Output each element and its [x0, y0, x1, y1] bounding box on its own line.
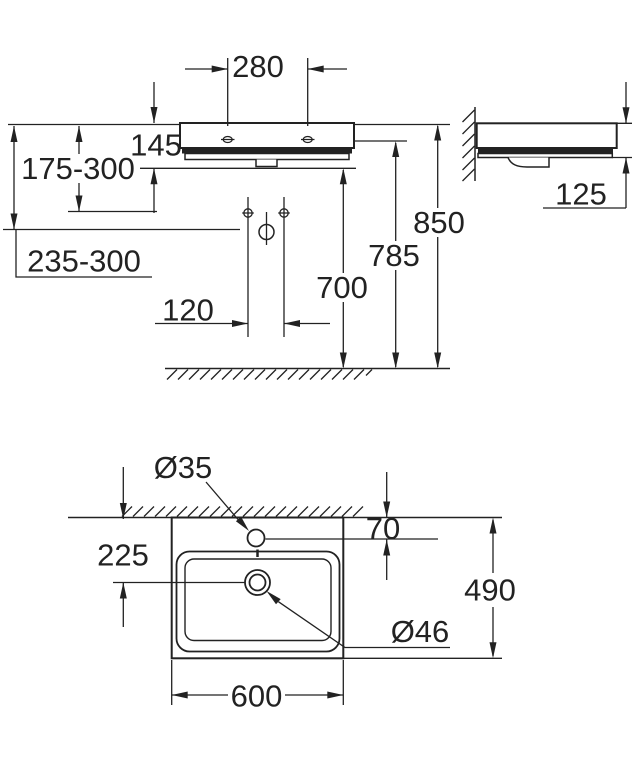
dimension-trap-to-floor: 700: [316, 168, 368, 368]
plan-view: Ø35 70 225 490 Ø46: [68, 450, 516, 714]
dim-700-arrow-bottom: [340, 353, 347, 369]
dim-280-arrow-right: [308, 66, 324, 73]
dimension-basin-width: 600: [172, 660, 344, 714]
dim-235-300-arrow-bottom: [11, 214, 18, 230]
dim-label-125: 125: [555, 177, 607, 212]
side-view: 125: [463, 82, 633, 212]
dimension-tap-spacing: 280: [185, 49, 347, 126]
supply-drain-centerlines: [242, 197, 290, 337]
drain-inner-plan: [250, 575, 266, 591]
dim-label-175-300: 175-300: [21, 151, 135, 186]
dim-125-arrow-bottom: [623, 158, 630, 174]
dim-785-arrow-top: [392, 141, 399, 157]
dim-235-300-arrow-top: [11, 126, 18, 142]
basin-side-base: [478, 154, 612, 158]
dim-125-arrow-top: [623, 107, 630, 123]
dim-850-arrow-top: [434, 125, 441, 141]
trap-cover-side: [508, 158, 549, 168]
wall-hatch-plan: [122, 507, 363, 517]
dim-175-300-arrow-bottom: [76, 196, 83, 212]
dim-label-850: 850: [413, 205, 465, 240]
washbasin-dimension-drawing: 280 145 175-300 235-300 120: [0, 0, 640, 767]
dim-label-235-300: 235-300: [27, 244, 141, 279]
basin-front-shadow-band: [182, 148, 352, 154]
floor-hatch: [167, 370, 372, 380]
basin-side-shadow-band: [478, 148, 613, 154]
dim-850-arrow-bottom: [434, 353, 441, 369]
dim-490-arrow-bottom: [490, 642, 497, 658]
dim-label-600: 600: [231, 679, 283, 714]
dim-120-arrow-right: [284, 320, 300, 327]
dim-145-arrow-top: [151, 107, 158, 123]
dim-label-dia35: Ø35: [154, 450, 213, 485]
dim-175-300-arrow-top: [76, 126, 83, 142]
dim-label-120: 120: [162, 293, 214, 328]
tap-hole-plan: [248, 530, 265, 547]
dim-label-145: 145: [130, 128, 182, 163]
dim-225-arrow-bottom: [120, 583, 127, 599]
dim-785-arrow-bottom: [392, 353, 399, 369]
dimension-tap-hole-to-wall: 70: [366, 472, 400, 580]
dim-label-225: 225: [97, 538, 149, 573]
dim-700-arrow-top: [340, 168, 347, 184]
dim-label-785: 785: [368, 238, 420, 273]
dim-145-arrow-bottom: [151, 168, 158, 184]
wall-hatch-side: [463, 110, 475, 181]
dim-225-arrow-top: [120, 503, 127, 519]
dim-label-490: 490: [464, 573, 516, 608]
basin-front-body: [180, 123, 354, 148]
basin-front-base: [185, 154, 349, 160]
dim-600-arrow-right: [327, 692, 343, 699]
dim-label-dia46: Ø46: [391, 614, 450, 649]
basin-side-body: [477, 123, 617, 148]
dim-label-70: 70: [366, 511, 400, 546]
front-view: 280 145 175-300 235-300 120: [3, 49, 465, 380]
dim-490-arrow-top: [490, 518, 497, 534]
dim-label-700: 700: [316, 270, 368, 305]
dim-280-arrow-left: [212, 66, 228, 73]
dim-600-arrow-left: [172, 692, 188, 699]
dimension-supply-spacing: 120: [155, 293, 330, 328]
dimension-drain-to-wall: 225: [97, 467, 149, 627]
technical-drawing-page: 280 145 175-300 235-300 120: [0, 0, 640, 767]
dimension-rim-to-floor: 850: [413, 125, 465, 369]
trap-cover-front: [256, 160, 277, 167]
dim-label-280: 280: [232, 49, 284, 84]
dim-120-arrow-left: [232, 320, 248, 327]
dimension-underside-to-floor: 785: [354, 141, 420, 369]
